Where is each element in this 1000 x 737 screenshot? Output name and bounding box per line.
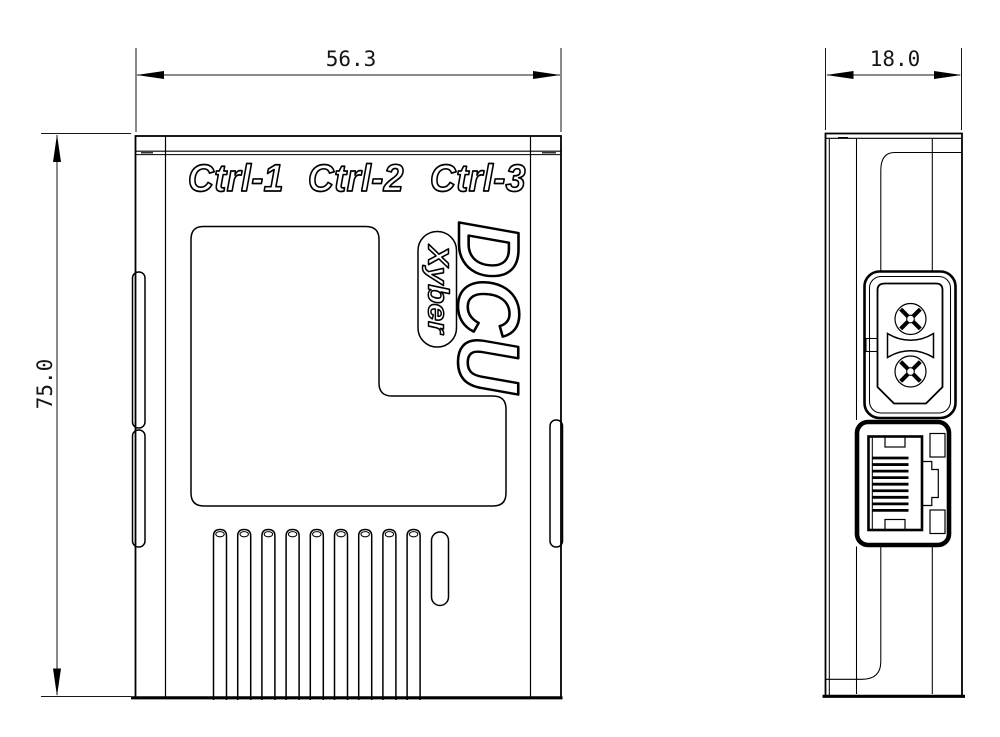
vent-slot	[238, 530, 251, 701]
vent-slots	[214, 530, 421, 701]
height-dim-text: 75.0	[33, 359, 57, 410]
arrowhead-right	[934, 71, 962, 79]
brand-name-text: Xyber	[422, 243, 454, 335]
terminal-hub	[907, 368, 915, 376]
rj45-pins	[873, 458, 909, 510]
arrowhead-left	[826, 71, 854, 79]
port-label-ctrl1: Ctrl-1	[188, 158, 284, 200]
arrowhead-bottom	[53, 669, 61, 697]
arrowhead-left	[137, 71, 165, 79]
vent-slot	[286, 530, 299, 701]
vent-slot	[335, 530, 348, 701]
vent-slot-cap	[313, 532, 321, 537]
vent-slot-cap	[240, 532, 248, 537]
vent-slot-cap	[361, 532, 369, 537]
technical-drawing-canvas: 56.3 75.0 Ctrl-	[0, 0, 1000, 737]
vent-slot-cap	[288, 532, 296, 537]
depth-dim-text: 18.0	[870, 47, 921, 71]
vent-slot-cap	[337, 532, 345, 537]
dimension-width: 56.3	[136, 47, 561, 132]
ethernet-jack-rj45	[857, 422, 949, 545]
drawing-svg: 56.3 75.0 Ctrl-	[0, 0, 1000, 737]
port-label-ctrl2: Ctrl-2	[308, 158, 404, 200]
vent-slot-cap	[385, 532, 393, 537]
side-view: 18.0	[823, 47, 966, 697]
vent-slot	[262, 530, 275, 701]
vent-slot	[359, 530, 372, 701]
dimension-height: 75.0	[33, 134, 131, 697]
port-labels: Ctrl-1 Ctrl-2 Ctrl-3	[188, 158, 526, 200]
front-view: 56.3 75.0 Ctrl-	[33, 47, 563, 700]
terminal-hub	[907, 315, 915, 323]
arrowhead-right	[533, 71, 561, 79]
power-connector-xt30	[865, 272, 956, 419]
vent-slot-cap	[264, 532, 272, 537]
vent-slot	[214, 530, 227, 701]
vent-slot-cap	[216, 532, 224, 537]
vent-slot	[407, 530, 420, 701]
width-dim-text: 56.3	[326, 47, 377, 71]
vent-slot	[310, 530, 323, 701]
dimension-depth: 18.0	[826, 47, 962, 130]
brand-badge: Xyber	[418, 232, 457, 348]
vent-slot	[383, 530, 396, 701]
port-label-ctrl3: Ctrl-3	[430, 158, 526, 200]
vent-slot-cap	[409, 532, 417, 537]
arrowhead-top	[53, 135, 61, 163]
